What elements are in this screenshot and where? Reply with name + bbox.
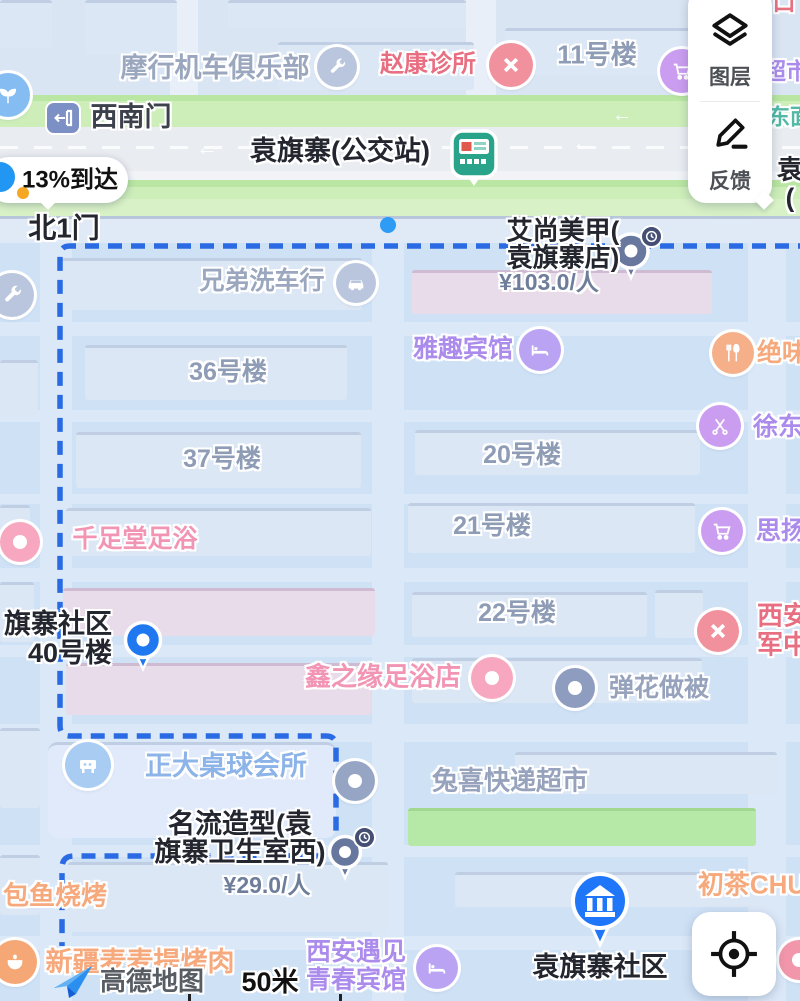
panel-divider	[700, 101, 760, 102]
car-wash-icon[interactable]	[336, 263, 376, 303]
poi-label-yujian-hotel[interactable]: 西安遇见	[306, 939, 406, 965]
poi-label-tuxi[interactable]: 兔喜快递超市	[432, 767, 588, 794]
poi-label-moto-club[interactable]: 摩行机车俱乐部	[121, 54, 310, 82]
building	[0, 360, 38, 415]
price-label-nail: ¥103.0/人	[499, 270, 599, 294]
building	[0, 0, 52, 48]
poi-label-siyang[interactable]: 思扬	[756, 518, 800, 544]
amap-logo: 高德地图	[52, 962, 204, 1001]
road-label-east: 东面	[768, 105, 800, 128]
restaurant-icon[interactable]	[712, 332, 754, 374]
building-label-20: 20号楼	[483, 442, 561, 468]
locate-button[interactable]	[692, 912, 776, 996]
feedback-label: 反馈	[709, 165, 751, 195]
layers-icon	[708, 10, 752, 55]
clock-badge-icon	[353, 826, 376, 849]
poi-label-nail-salon[interactable]: 艾尚美甲(	[507, 217, 620, 244]
map-control-panel: 图层 反馈	[688, 0, 772, 203]
wrench-icon[interactable]	[0, 273, 34, 317]
gate-icon[interactable]	[47, 103, 79, 133]
building	[0, 728, 40, 808]
map-canvas[interactable]: ← ← ←	[0, 0, 800, 1001]
poi-label-mingliu[interactable]: 旗寨卫生室西)	[155, 838, 326, 866]
building-label-22: 22号楼	[478, 600, 556, 626]
poi-label-xinzhiyuan[interactable]: 鑫之缘足浴店	[305, 663, 461, 690]
building-green	[408, 808, 756, 846]
layers-button[interactable]: 图层	[688, 0, 772, 91]
feedback-pencil-icon	[709, 114, 751, 159]
street-h6	[0, 724, 800, 742]
amap-logo-text: 高德地图	[100, 968, 204, 995]
street-h4	[0, 568, 800, 582]
road-label-west-gate: 西南门	[91, 103, 172, 131]
building-label-21: 21号楼	[453, 513, 531, 539]
building	[655, 590, 703, 638]
building-label-36: 36号楼	[189, 359, 267, 385]
poi-label-military[interactable]: 军中	[757, 631, 800, 658]
arrival-text: 13%到达	[22, 167, 118, 192]
poi-label-clinic[interactable]: 赵康诊所	[380, 51, 476, 76]
clock-badge-icon	[640, 225, 663, 248]
building	[228, 0, 466, 28]
poi-label-juewei[interactable]: 绝味	[757, 340, 800, 366]
hotel-bed-icon[interactable]	[519, 329, 561, 371]
cart-icon[interactable]	[701, 510, 743, 552]
building-21	[408, 503, 695, 553]
restaurant-icon[interactable]	[0, 940, 37, 984]
building-label-37: 37号楼	[183, 446, 261, 472]
poi-label-xudong[interactable]: 徐东	[753, 414, 800, 440]
amap-plane-icon	[52, 962, 96, 1001]
billiards-icon[interactable]	[65, 742, 111, 788]
poi-label-community40[interactable]: 旗寨社区	[4, 610, 112, 638]
poi-label-community-main[interactable]: 袁旗寨社区	[533, 953, 668, 981]
road-label-bus-station[interactable]: 袁旗寨(公交站)	[250, 137, 430, 165]
poi-label-nail-salon[interactable]: 袁旗寨店)	[507, 244, 620, 271]
poi-label-yaqu-hotel[interactable]: 雅趣宾馆	[413, 336, 513, 362]
feedback-button[interactable]: 反馈	[688, 112, 772, 195]
edge-label-line1: 袁	[777, 156, 800, 183]
crosshair-icon	[709, 929, 759, 979]
foot-spa-icon[interactable]	[0, 522, 40, 562]
scissors-icon[interactable]	[699, 405, 741, 447]
lane-arrow-icon: ←	[612, 105, 632, 126]
poi-label-qianzutang[interactable]: 千足堂足浴	[72, 526, 197, 552]
scale-label: 50米	[241, 968, 298, 996]
poi-dot-icon[interactable]	[555, 668, 595, 708]
edge-label-line2: (	[786, 184, 795, 211]
poi-label-community40[interactable]: 40号楼	[28, 639, 112, 667]
hotel-bed-icon[interactable]	[416, 947, 458, 989]
clinic-cross-icon[interactable]	[489, 43, 533, 87]
layers-label: 图层	[709, 61, 751, 91]
bus-station-icon[interactable]	[448, 128, 500, 193]
poi-label-chucha[interactable]: 初茶CHU	[698, 871, 800, 898]
route-dot	[380, 217, 396, 233]
building	[85, 0, 177, 55]
road-sidewalk	[0, 219, 800, 243]
price-label-mingliu: ¥29.0/人	[224, 873, 311, 897]
poi-label-military[interactable]: 西安	[757, 602, 800, 629]
road-green-band-5	[0, 199, 800, 216]
street-h7	[0, 845, 800, 857]
street-h2	[0, 410, 800, 422]
road-label-north-gate: 北1门	[28, 213, 100, 242]
poi-label-car-wash[interactable]: 兄弟洗车行	[199, 268, 324, 294]
poi-label-yujian-hotel[interactable]: 青春宾馆	[306, 967, 406, 993]
poi-label-tanhua[interactable]: 弹花做被	[609, 675, 709, 701]
pin-community-main[interactable]	[567, 869, 633, 960]
poi-label-billiards[interactable]: 正大桌球会所	[145, 752, 307, 780]
poi-label-baoyu[interactable]: 包鱼烧烤	[3, 882, 107, 909]
lane-arrow-icon: ←	[572, 131, 594, 154]
building-label-11: 11号楼	[557, 41, 637, 68]
pin-mingliu[interactable]	[324, 832, 370, 889]
wrench-icon[interactable]	[317, 47, 357, 87]
poi-label-mingliu[interactable]: 名流造型(袁	[168, 810, 312, 838]
poi-dot-icon[interactable]	[335, 761, 375, 801]
waypoint-dot	[17, 187, 29, 199]
foot-spa-icon[interactable]	[471, 657, 513, 699]
street-h5	[0, 645, 800, 657]
street-h1	[0, 322, 800, 336]
pin-building-40[interactable]	[122, 618, 166, 679]
hospital-cross-icon[interactable]	[697, 610, 739, 652]
poi-label-corner-red[interactable]: 口	[773, 0, 796, 14]
scale-bar	[188, 994, 342, 1001]
lane-arrow-icon: ←	[196, 136, 218, 159]
